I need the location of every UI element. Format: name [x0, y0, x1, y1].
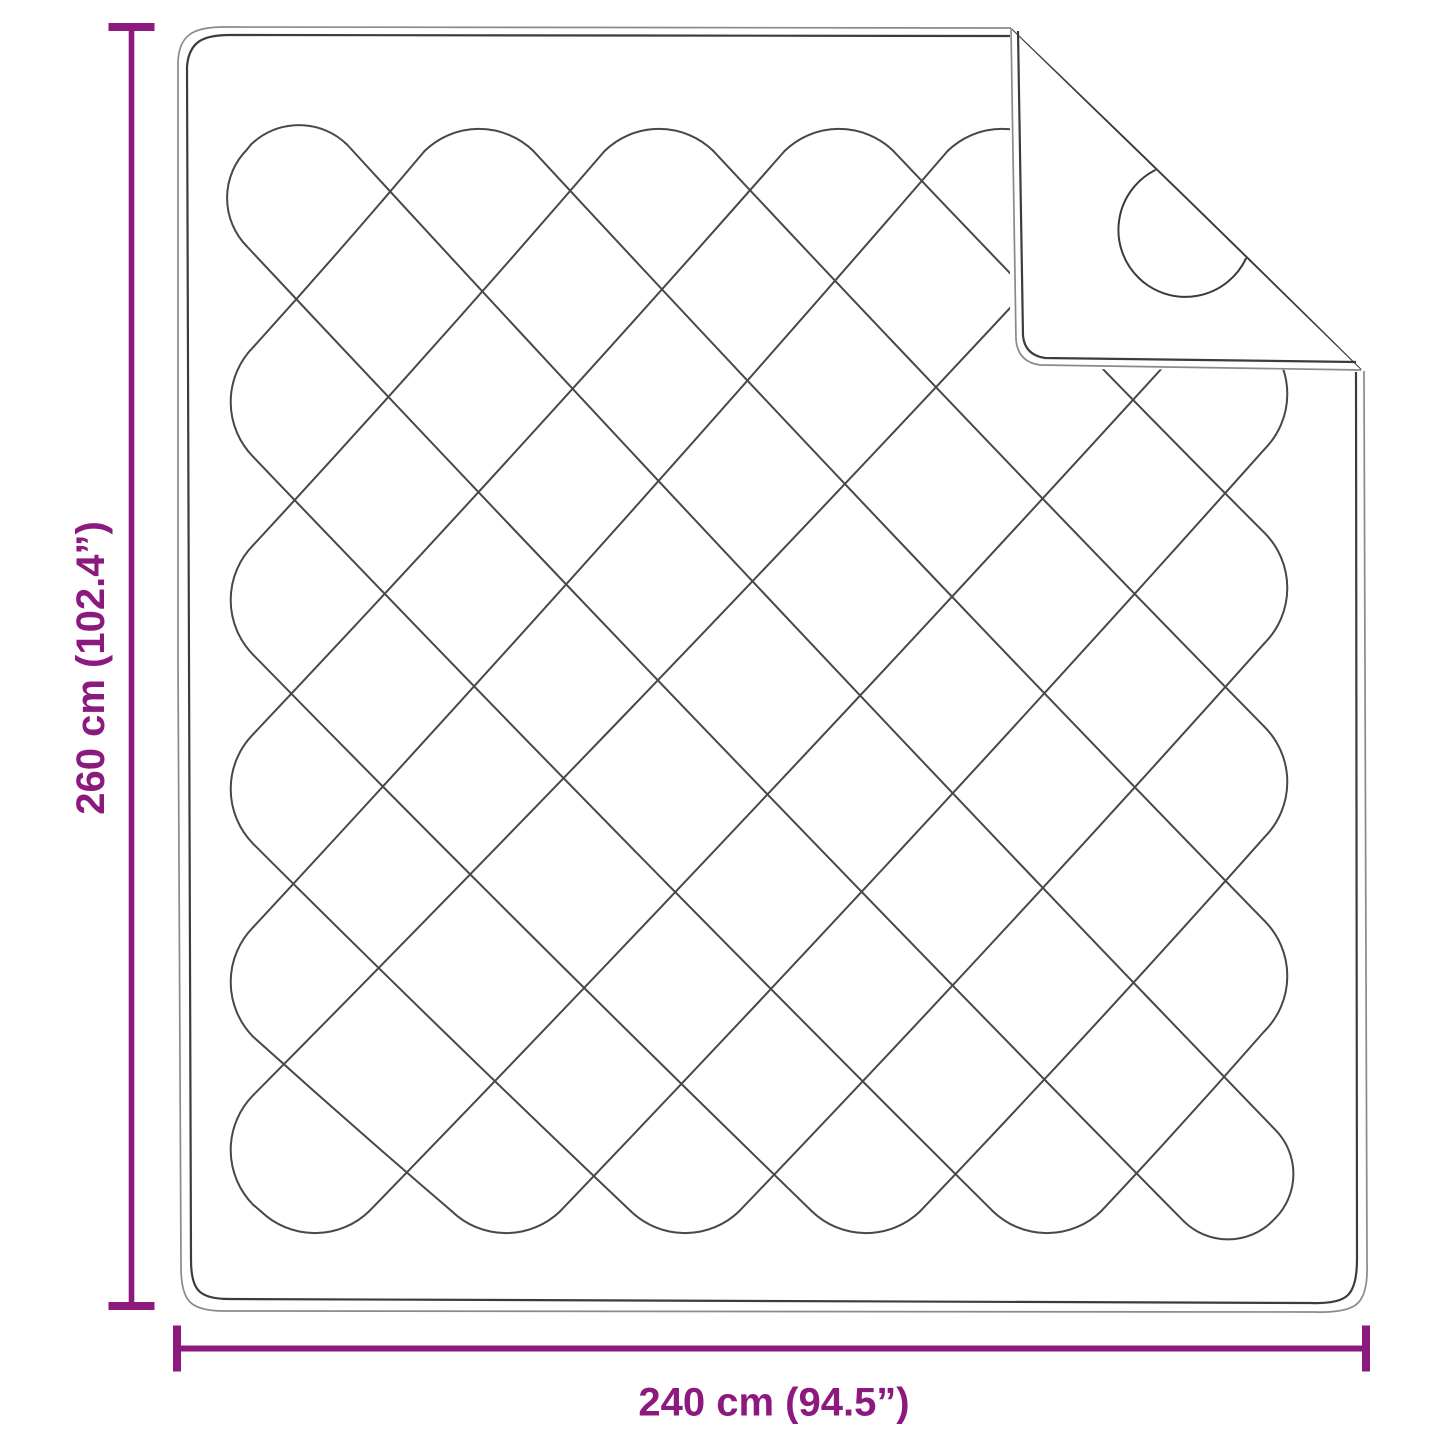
svg-text:260 cm (102.4”): 260 cm (102.4”) — [69, 521, 113, 815]
svg-text:240 cm (94.5”): 240 cm (94.5”) — [638, 1381, 909, 1425]
